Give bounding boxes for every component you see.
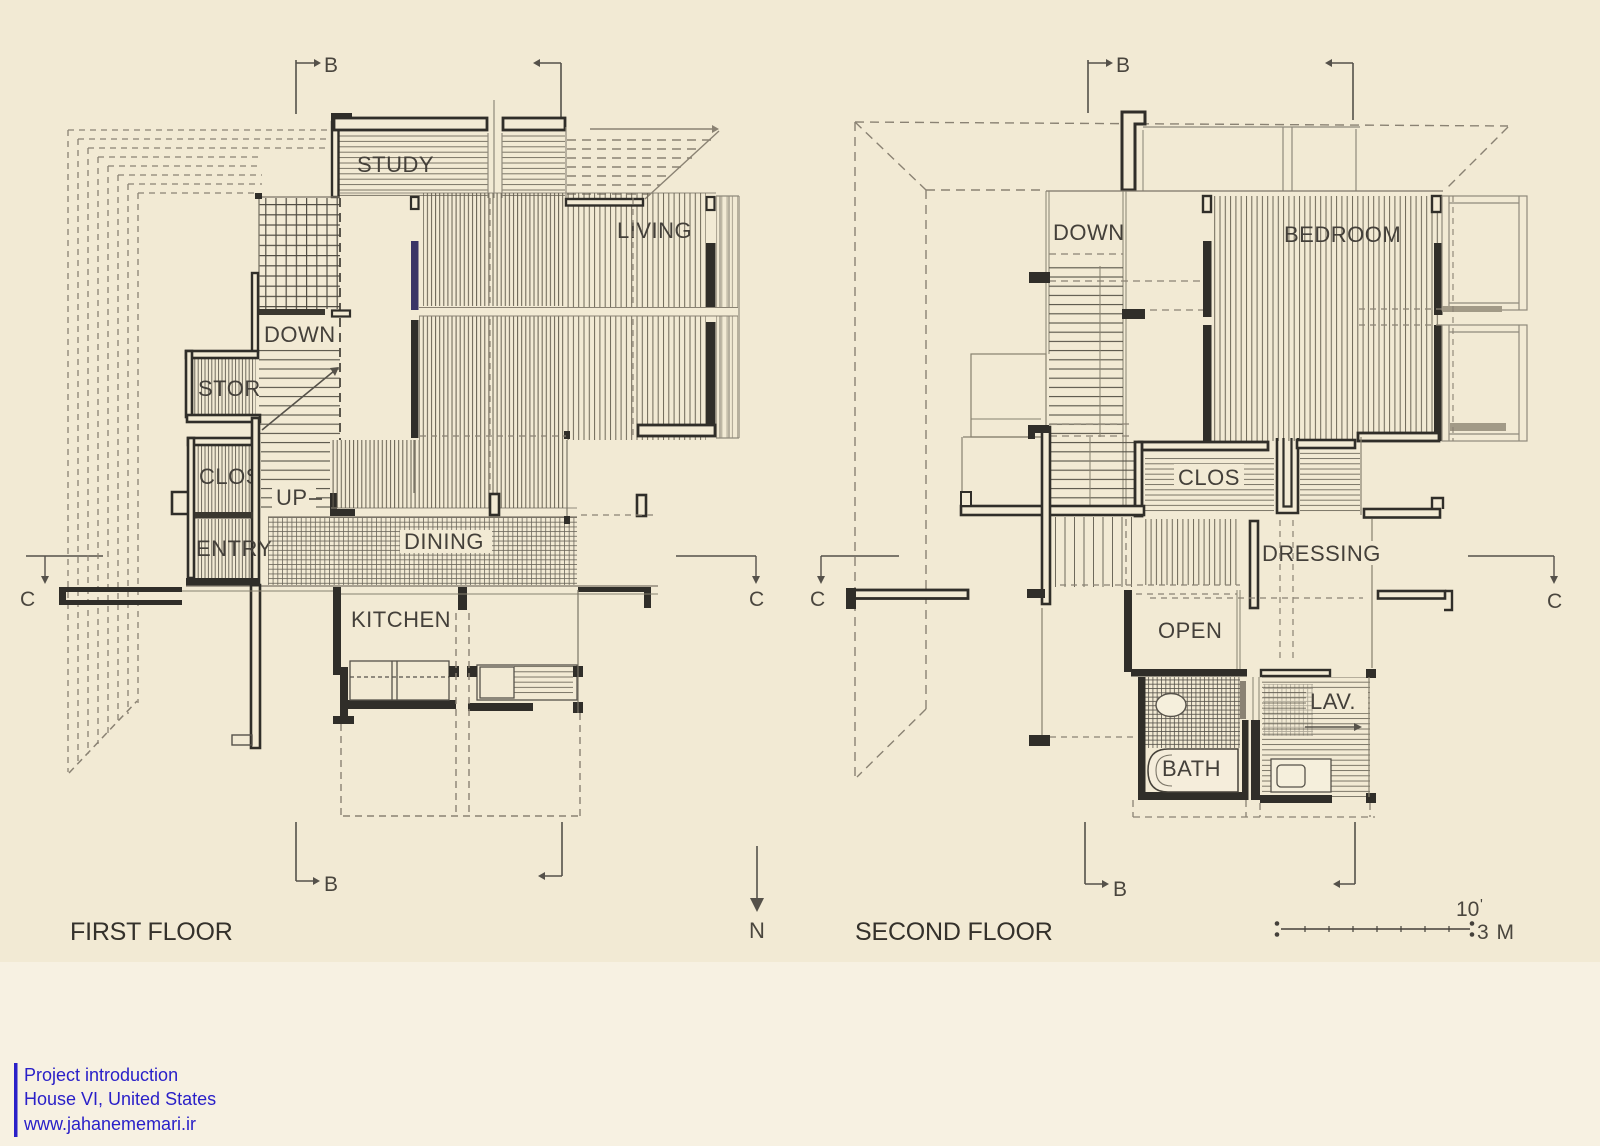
svg-text:B: B	[1113, 878, 1127, 901]
svg-text:LAV.: LAV.	[1310, 689, 1356, 714]
svg-text:BATH: BATH	[1162, 756, 1221, 781]
svg-text:UP: UP	[276, 485, 308, 510]
svg-text:KITCHEN: KITCHEN	[351, 607, 451, 632]
svg-text:SECOND FLOOR: SECOND FLOOR	[855, 918, 1053, 946]
svg-text:C: C	[810, 588, 825, 611]
svg-text:DINING: DINING	[404, 529, 484, 554]
svg-text:STOR: STOR	[198, 376, 261, 401]
svg-text:10: 10	[1456, 898, 1479, 921]
svg-text:Project introduction: Project introduction	[24, 1065, 178, 1085]
svg-text:DOWN: DOWN	[264, 322, 336, 347]
svg-text:www.jahanememari.ir: www.jahanememari.ir	[23, 1114, 196, 1134]
svg-text:B: B	[1116, 54, 1130, 77]
svg-text:N: N	[749, 918, 765, 943]
svg-text:C: C	[20, 588, 35, 611]
svg-text:DOWN: DOWN	[1053, 220, 1125, 245]
svg-text:OPEN: OPEN	[1158, 618, 1222, 643]
svg-text:B: B	[324, 873, 338, 896]
svg-text:C: C	[749, 588, 764, 611]
svg-text:LIVING: LIVING	[617, 218, 692, 243]
svg-text:FIRST FLOOR: FIRST FLOOR	[70, 918, 233, 946]
svg-text:C: C	[1547, 590, 1562, 613]
svg-text:B: B	[324, 54, 338, 77]
svg-text:3 M: 3 M	[1477, 921, 1515, 944]
svg-text:CLOS: CLOS	[1178, 465, 1240, 490]
svg-text:ENTRY: ENTRY	[196, 536, 273, 561]
svg-text:BEDROOM: BEDROOM	[1284, 222, 1401, 247]
svg-text:': '	[1480, 896, 1483, 913]
svg-text:STUDY: STUDY	[357, 152, 434, 177]
svg-text:House VI, United States: House VI, United States	[24, 1089, 216, 1109]
